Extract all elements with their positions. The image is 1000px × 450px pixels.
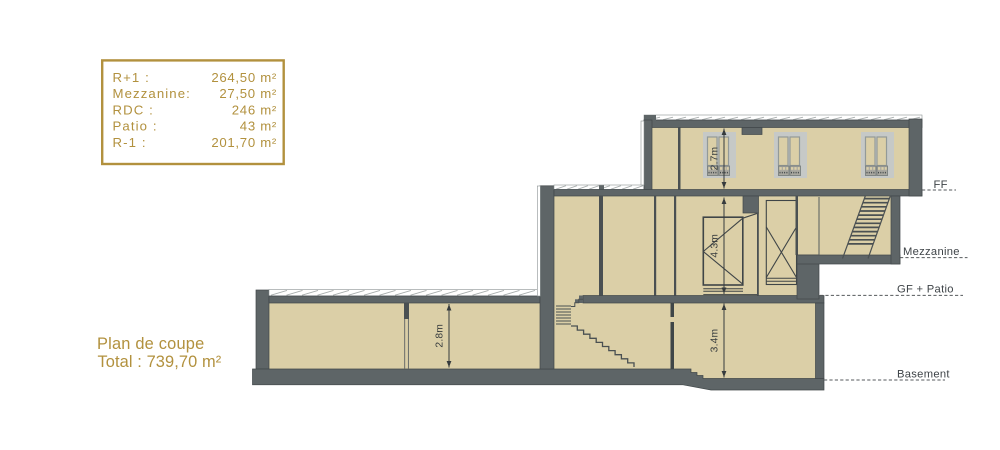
svg-text:4.3m: 4.3m <box>710 234 721 258</box>
svg-text:246 m²: 246 m² <box>232 102 277 117</box>
svg-text:R-1 :: R-1 : <box>113 135 147 150</box>
svg-text:Basement: Basement <box>897 369 950 381</box>
svg-text:Mezzanine: Mezzanine <box>903 246 960 258</box>
svg-text:RDC :: RDC : <box>113 102 154 117</box>
svg-text:Total : 739,70 m²: Total : 739,70 m² <box>98 353 222 371</box>
svg-text:201,70 m²: 201,70 m² <box>211 135 277 150</box>
svg-text:27,50 m²: 27,50 m² <box>219 86 277 101</box>
svg-text:3.4m: 3.4m <box>710 329 721 353</box>
svg-text:FF: FF <box>934 179 948 191</box>
svg-text:Plan de coupe: Plan de coupe <box>97 335 204 353</box>
svg-text:264,50 m²: 264,50 m² <box>211 70 277 85</box>
svg-text:GF + Patio: GF + Patio <box>897 284 954 296</box>
svg-text:2.7m: 2.7m <box>710 147 721 171</box>
svg-text:Mezzanine:: Mezzanine: <box>113 86 191 101</box>
svg-text:Patio :: Patio : <box>113 119 158 134</box>
svg-text:R+1 :: R+1 : <box>113 70 150 85</box>
svg-text:2.8m: 2.8m <box>435 324 446 348</box>
svg-text:43 m²: 43 m² <box>240 119 277 134</box>
